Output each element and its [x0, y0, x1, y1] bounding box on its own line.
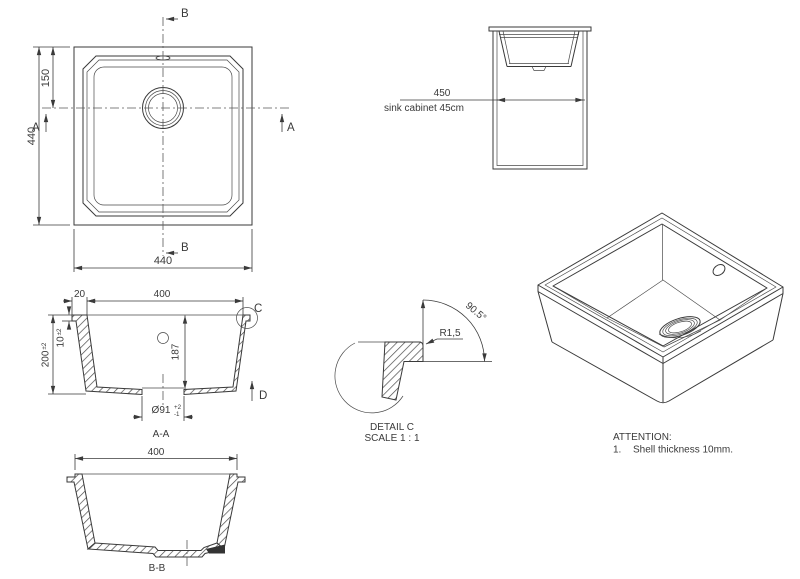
direction-d-letter: D — [259, 390, 267, 402]
drain-rings — [657, 312, 702, 341]
left-wall-section — [67, 474, 95, 549]
section-bb-label: B-B — [149, 563, 166, 574]
attention-heading: ATTENTION: — [613, 432, 672, 443]
right-wall-section — [184, 315, 250, 395]
bowl-top-diamond — [553, 224, 767, 346]
attention-note: ATTENTION: 1. Shell thickness 10mm. — [613, 432, 733, 456]
right-wall-section — [217, 474, 245, 549]
drawing-sheet: B B A A 440 150 440 450 sink cabinet — [0, 0, 800, 579]
floor-section — [88, 543, 224, 557]
dim-drain-tol-lower: -1 — [174, 411, 180, 418]
rim-outer-diamond — [538, 213, 783, 357]
detail-c-title: DETAIL C — [370, 422, 414, 433]
attention-note-number: 1. — [613, 445, 621, 456]
cabinet-label: sink cabinet 45cm — [384, 103, 464, 114]
sink-outer-profile — [499, 31, 579, 67]
dim-450: 450 — [434, 88, 451, 99]
dim-400: 400 — [154, 289, 171, 300]
section-label-a-right: A — [287, 122, 295, 134]
isometric-view — [538, 213, 783, 403]
detail-c-scale: SCALE 1 : 1 — [364, 433, 419, 444]
dim-20: 20 — [74, 289, 86, 300]
radius-leader — [426, 339, 463, 344]
attention-note-text: Shell thickness 10mm. — [633, 445, 733, 456]
dim-187: 187 — [171, 343, 182, 360]
detail-c-view: 90.5° R1,5 DETAIL C SCALE 1 : 1 — [335, 300, 492, 444]
detail-c-letter: C — [254, 303, 262, 315]
left-wall-section — [72, 315, 142, 395]
dim-200: 200±2 — [41, 342, 52, 367]
dim-drain-diameter: Ø91 — [152, 405, 171, 416]
cabinet-inner — [497, 31, 583, 166]
drain-stub — [532, 67, 546, 71]
countertop — [489, 27, 591, 31]
section-aa-label: A-A — [153, 429, 170, 440]
dim-440-bottom: 440 — [154, 255, 172, 267]
section-aa-view: 20 400 10±2 200±2 187 Ø91 +2 -1 C D A-A — [41, 289, 268, 440]
sink-rim-lines — [499, 35, 579, 38]
overflow-hole — [158, 333, 169, 344]
angle-value: 90.5° — [463, 300, 488, 324]
section-label-b-bottom: B — [181, 242, 189, 254]
dim-150: 150 — [40, 69, 52, 87]
radius-value: R1,5 — [439, 328, 461, 339]
rim-lip-edges — [538, 285, 783, 364]
section-bb-view: 400 B-B — [67, 447, 245, 574]
drain-ring — [657, 312, 702, 341]
top-view: B B A A 440 150 440 — [26, 8, 295, 272]
cabinet-view: 450 sink cabinet 45cm — [384, 27, 591, 169]
technical-drawing-canvas: B B A A 440 150 440 450 sink cabinet — [0, 0, 800, 579]
rim-inner-diamond — [545, 218, 776, 352]
dim-10: 10±2 — [56, 328, 67, 348]
dim-drain-tol-upper: +2 — [174, 404, 182, 411]
dim-400: 400 — [148, 447, 165, 458]
sink-inner-profile — [503, 31, 575, 64]
overflow-hole — [711, 262, 727, 278]
wall-corner-section — [382, 342, 423, 400]
dim-440-left: 440 — [26, 127, 38, 145]
section-label-b-top: B — [181, 8, 189, 20]
